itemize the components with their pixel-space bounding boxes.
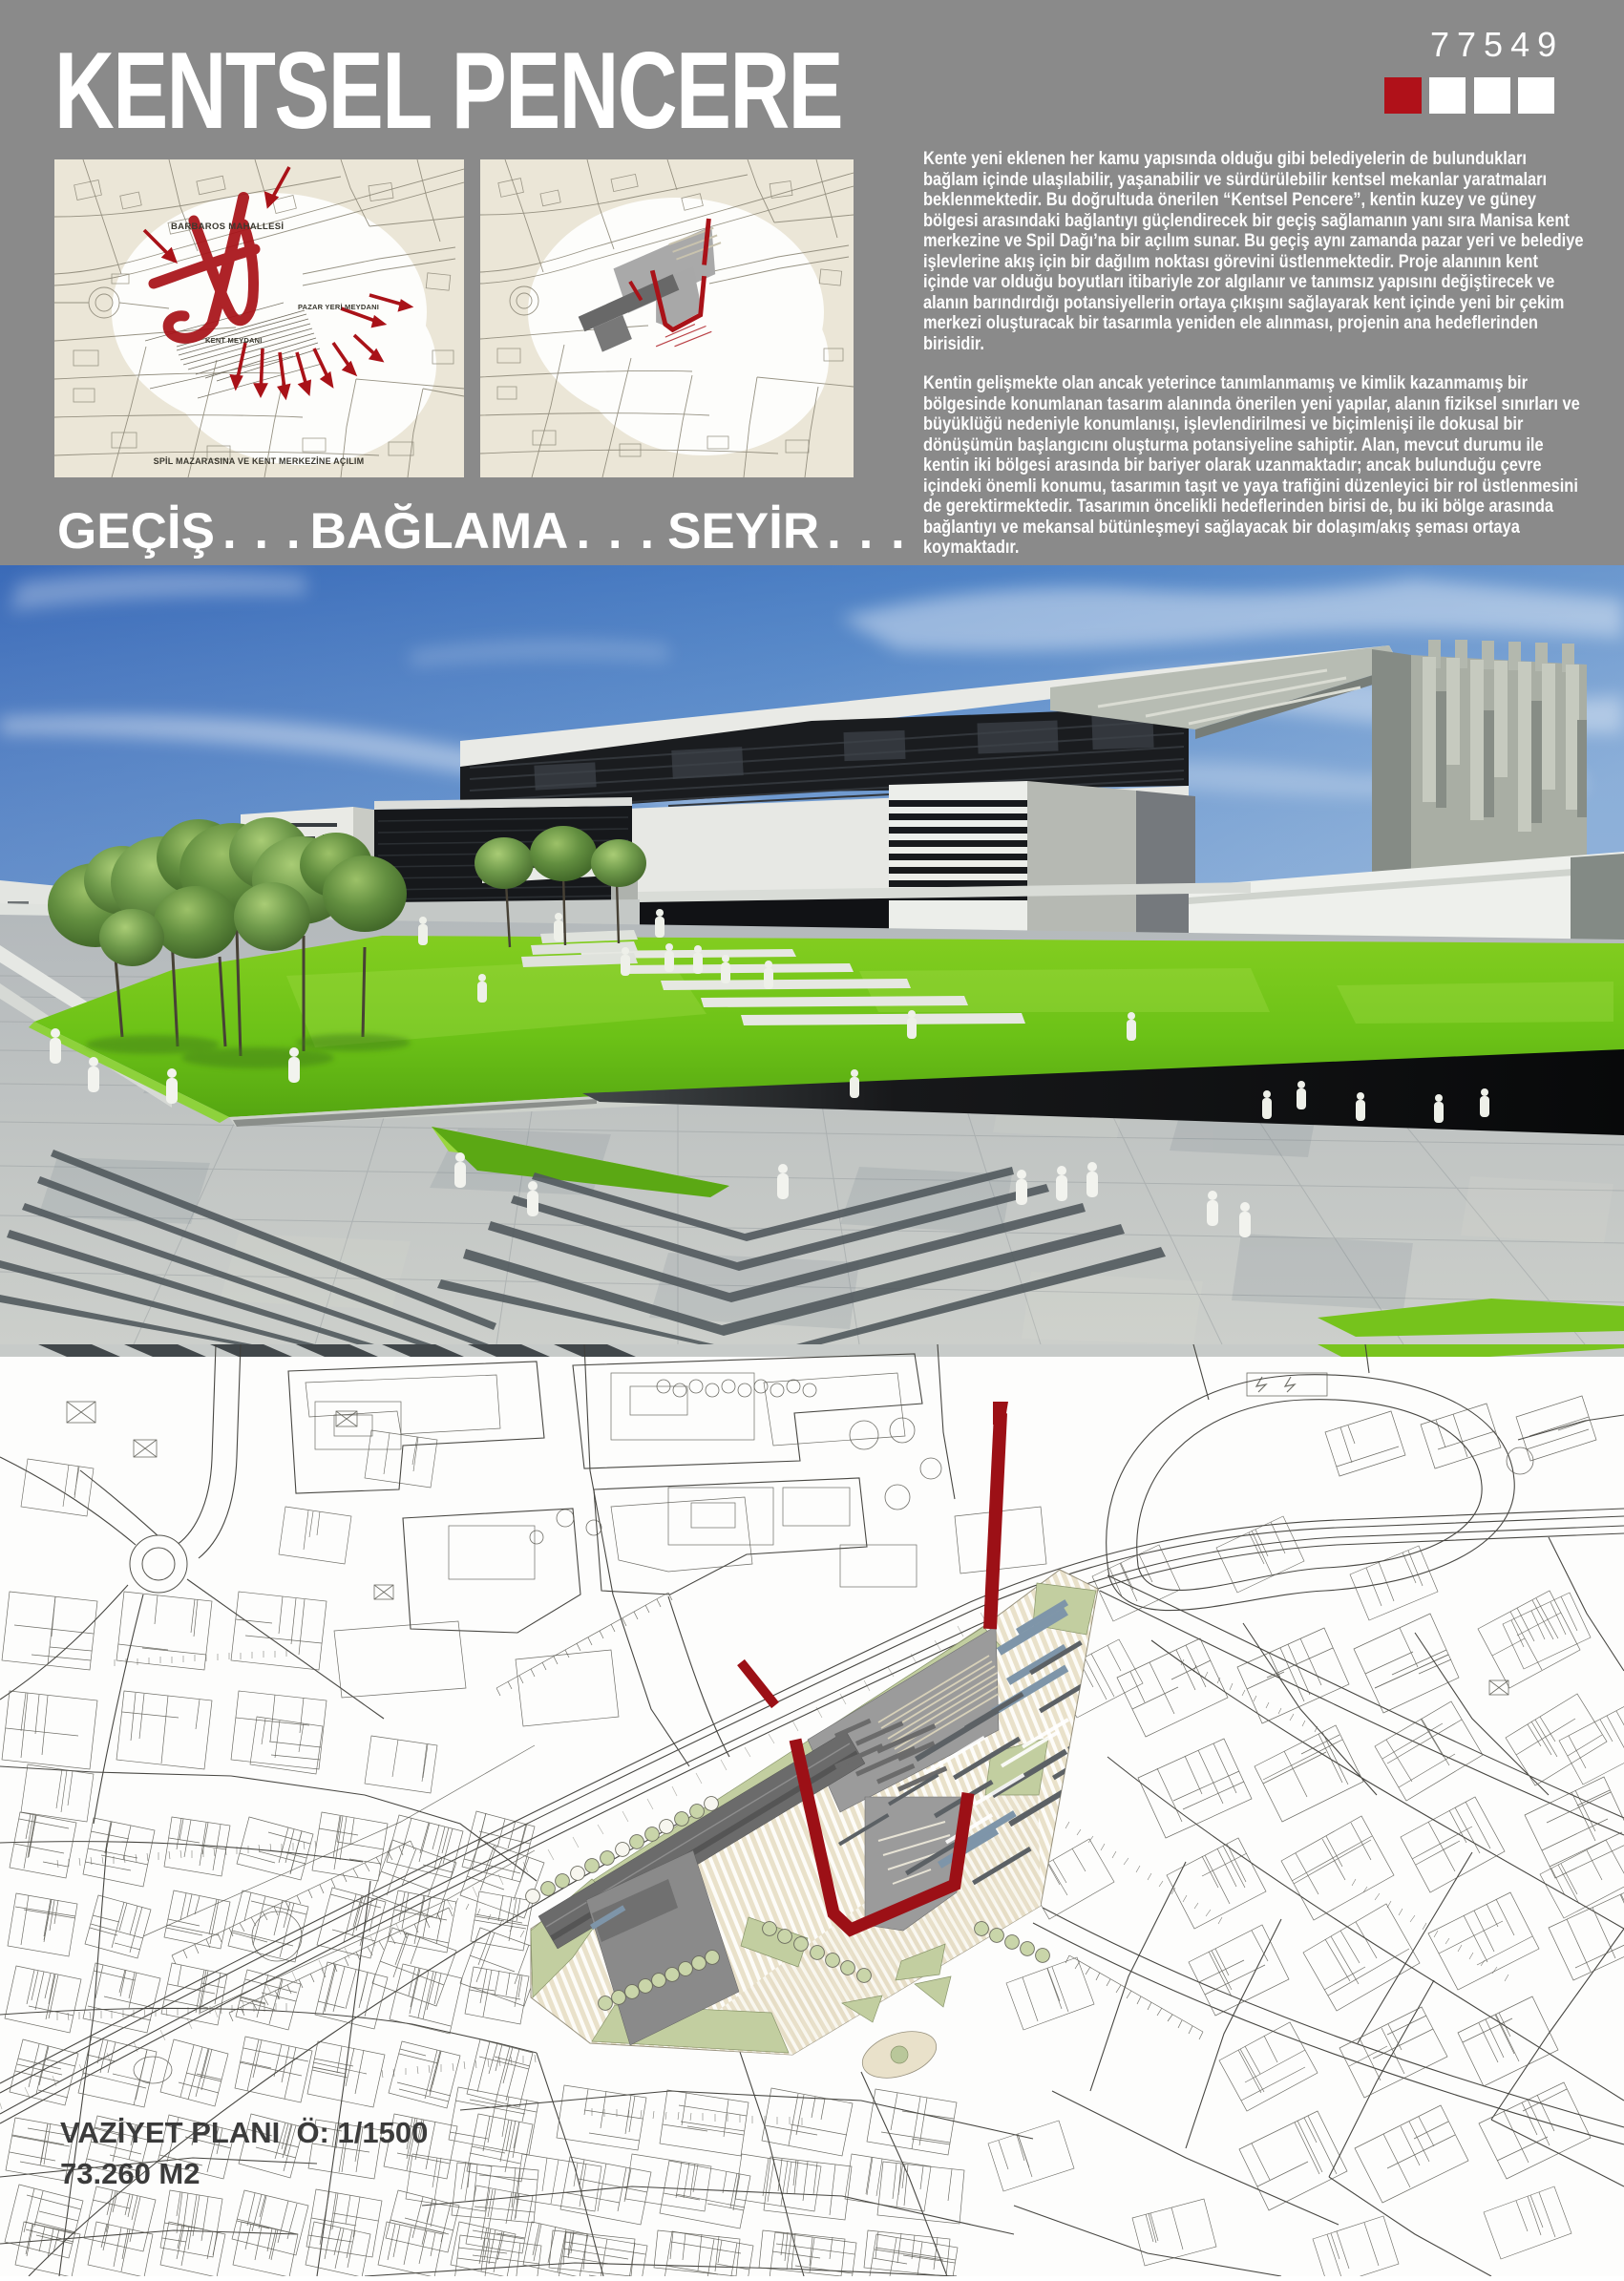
svg-text:KENT MEYDANI: KENT MEYDANI [205, 336, 263, 345]
svg-text:PAZAR YERİ MEYDANI: PAZAR YERİ MEYDANI [298, 303, 379, 311]
svg-text:BARBAROS MAHALLESİ: BARBAROS MAHALLESİ [171, 222, 284, 232]
svg-text:73.260 M2: 73.260 M2 [60, 2157, 200, 2190]
svg-text:VAZİYET PLANI Ö: 1/1500: VAZİYET PLANI Ö: 1/1500 [60, 2116, 428, 2149]
svg-text:SPİL MAZARASINA VE KENT MERKEZ: SPİL MAZARASINA VE KENT MERKEZİNE AÇILIM [154, 456, 365, 466]
